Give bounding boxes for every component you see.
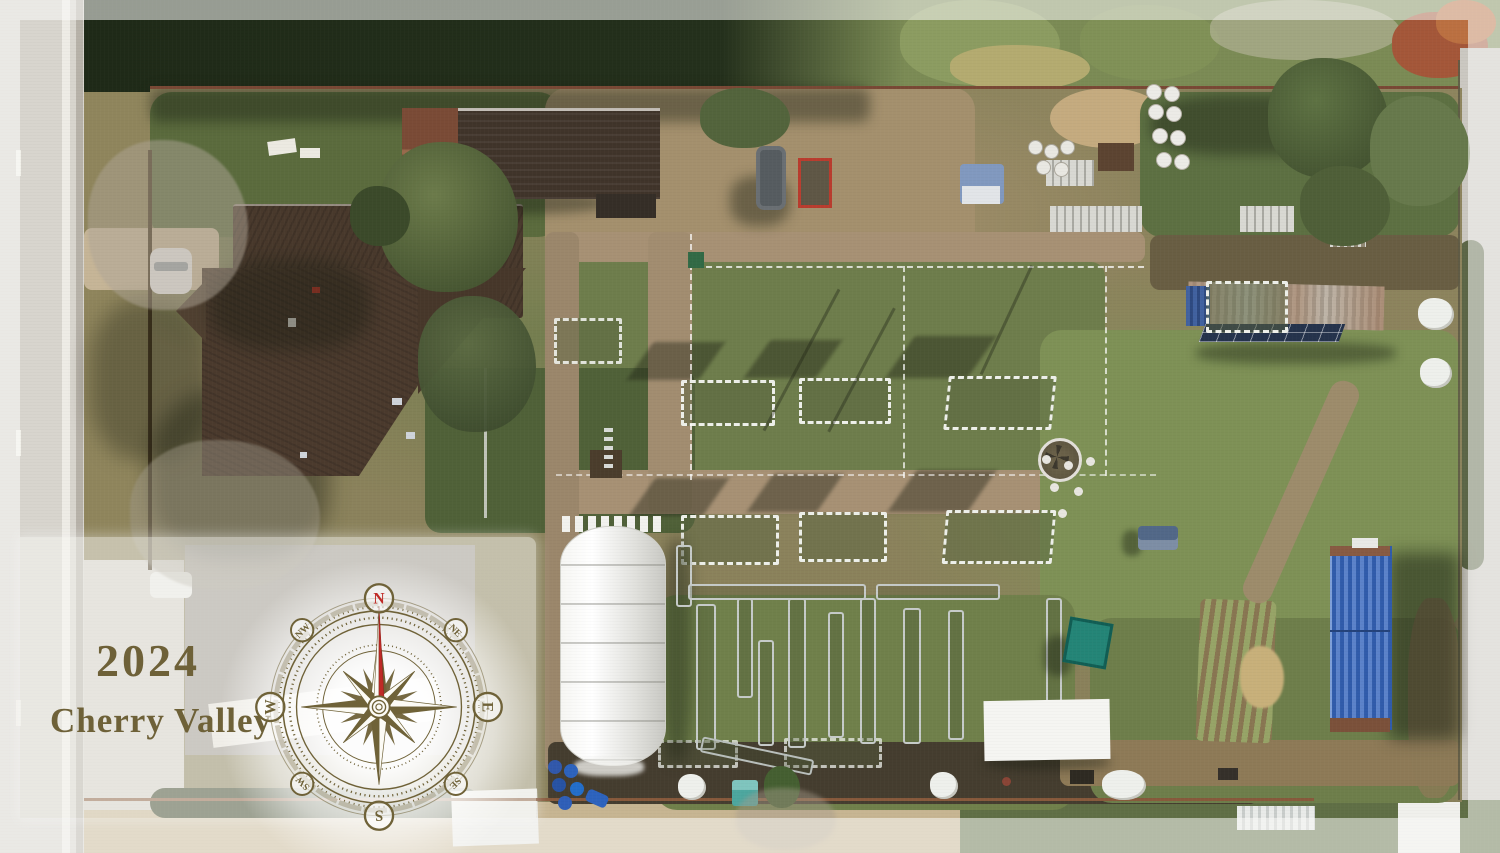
corrugated-sheets-stack — [1237, 806, 1315, 830]
parked-car-gray — [756, 146, 786, 210]
compass-label-n: N — [373, 591, 384, 608]
white-bucket — [1156, 152, 1172, 168]
fence-line — [690, 234, 692, 480]
dark-crate — [1218, 768, 1238, 780]
metal-grow-bed — [828, 612, 844, 738]
blue-barrel — [552, 778, 566, 792]
block-pallet — [1240, 206, 1294, 232]
aerial-photo-2024-cherry-valley: 2024 Cherry Valley — [0, 0, 1500, 853]
bare-tree — [88, 140, 248, 310]
white-planter — [1042, 455, 1051, 464]
compass-hub — [368, 696, 389, 717]
barrel-cluster — [548, 760, 612, 812]
compass-rose-icon: N NE E SE S SW W NW — [248, 576, 510, 838]
white-planter — [1028, 140, 1043, 155]
compass-label-s: S — [375, 806, 384, 823]
dirt-path — [545, 232, 1145, 262]
white-planter — [1074, 487, 1083, 496]
wrapped-equipment — [1418, 298, 1454, 330]
white-table — [962, 186, 1000, 204]
planter-grid — [1042, 455, 1106, 525]
container-rust-end — [1330, 718, 1390, 732]
orange-foliage — [1436, 0, 1496, 44]
fence-line — [1105, 266, 1107, 476]
white-canopy-shed — [983, 699, 1110, 761]
white-bucket — [1146, 84, 1162, 100]
white-bucket — [1170, 130, 1186, 146]
white-planter — [1060, 140, 1075, 155]
ladder — [604, 428, 613, 470]
white-bucket — [1166, 106, 1182, 122]
pale-branches-top-right — [1210, 0, 1400, 60]
white-bucket — [1152, 128, 1168, 144]
planter-cluster — [1028, 140, 1084, 182]
metal-grow-bed — [696, 604, 716, 750]
white-bucket — [1164, 86, 1180, 102]
metal-grow-bed — [758, 640, 774, 746]
metal-grow-bed — [903, 608, 921, 744]
container-door-seam — [1330, 630, 1390, 632]
tree-canopy — [1300, 166, 1390, 246]
brown-table — [1098, 143, 1134, 171]
bucket-cluster — [1146, 84, 1202, 180]
white-planter — [1054, 162, 1069, 177]
compass-label-w: W — [263, 699, 280, 715]
year-label: 2024 — [96, 634, 200, 687]
white-tarp — [1352, 538, 1378, 548]
fence-top — [150, 86, 1460, 89]
white-bucket — [1174, 154, 1190, 170]
metal-grow-bed — [860, 598, 876, 744]
metal-grow-bed — [788, 598, 806, 748]
white-bucket — [1148, 104, 1164, 120]
white-planter — [1036, 160, 1051, 175]
roof-vent — [300, 452, 307, 458]
white-tarp — [300, 148, 320, 158]
metal-grow-bed — [688, 584, 866, 600]
road-marking — [16, 430, 21, 456]
white-planter — [1050, 483, 1059, 492]
blue-barrel — [548, 760, 562, 774]
raised-bed — [554, 318, 622, 364]
container-shadow — [1196, 342, 1396, 364]
location-label: Cherry Valley — [50, 701, 272, 741]
raised-bed — [799, 512, 887, 562]
shrub — [350, 186, 410, 246]
white-planter — [1044, 144, 1059, 159]
utility-cart-blue — [1138, 526, 1178, 550]
white-tarp — [1102, 770, 1146, 800]
raised-bed — [943, 376, 1057, 430]
roof-vent — [406, 432, 415, 439]
container-shadow — [1388, 552, 1460, 740]
fence-line — [903, 266, 905, 478]
olive-tree — [418, 296, 536, 432]
wrapped-equipment — [1420, 358, 1452, 388]
blue-barrel — [570, 782, 584, 796]
red-frame-trailer — [798, 158, 832, 208]
blue-barrel-lying — [584, 788, 609, 809]
dry-grass-top — [950, 45, 1090, 90]
tree-canopy — [1080, 5, 1220, 80]
dry-cornstalks — [1240, 646, 1284, 708]
clay-pot — [1002, 777, 1011, 786]
block-pallet — [1050, 206, 1142, 232]
white-tarp — [678, 774, 706, 800]
raised-bed — [681, 380, 775, 426]
raised-bed — [681, 515, 779, 565]
shrub — [700, 88, 790, 148]
metal-grow-bed — [948, 610, 964, 740]
fence-line — [696, 266, 1144, 268]
metal-grow-bed — [876, 584, 1000, 600]
blue-barrel — [564, 764, 578, 778]
white-tarp — [930, 772, 958, 799]
shipping-container-blue — [1330, 546, 1392, 730]
white-planter — [1058, 509, 1067, 518]
blue-barrel — [558, 796, 572, 810]
dark-crate — [1070, 770, 1094, 784]
compass-label-e: E — [478, 702, 495, 712]
roof-vent — [392, 398, 402, 405]
hoop-house — [560, 526, 666, 766]
white-planter — [1064, 461, 1073, 470]
bare-tree — [736, 788, 836, 850]
white-roof-corner — [1398, 796, 1460, 853]
metal-grow-bed — [737, 598, 753, 698]
trampoline-teal — [1062, 617, 1113, 670]
raised-bed — [1206, 281, 1288, 333]
raised-bed — [942, 510, 1057, 564]
road-marking — [16, 150, 21, 176]
green-bin — [688, 252, 704, 268]
small-shed — [596, 194, 656, 218]
white-planter — [1086, 457, 1095, 466]
